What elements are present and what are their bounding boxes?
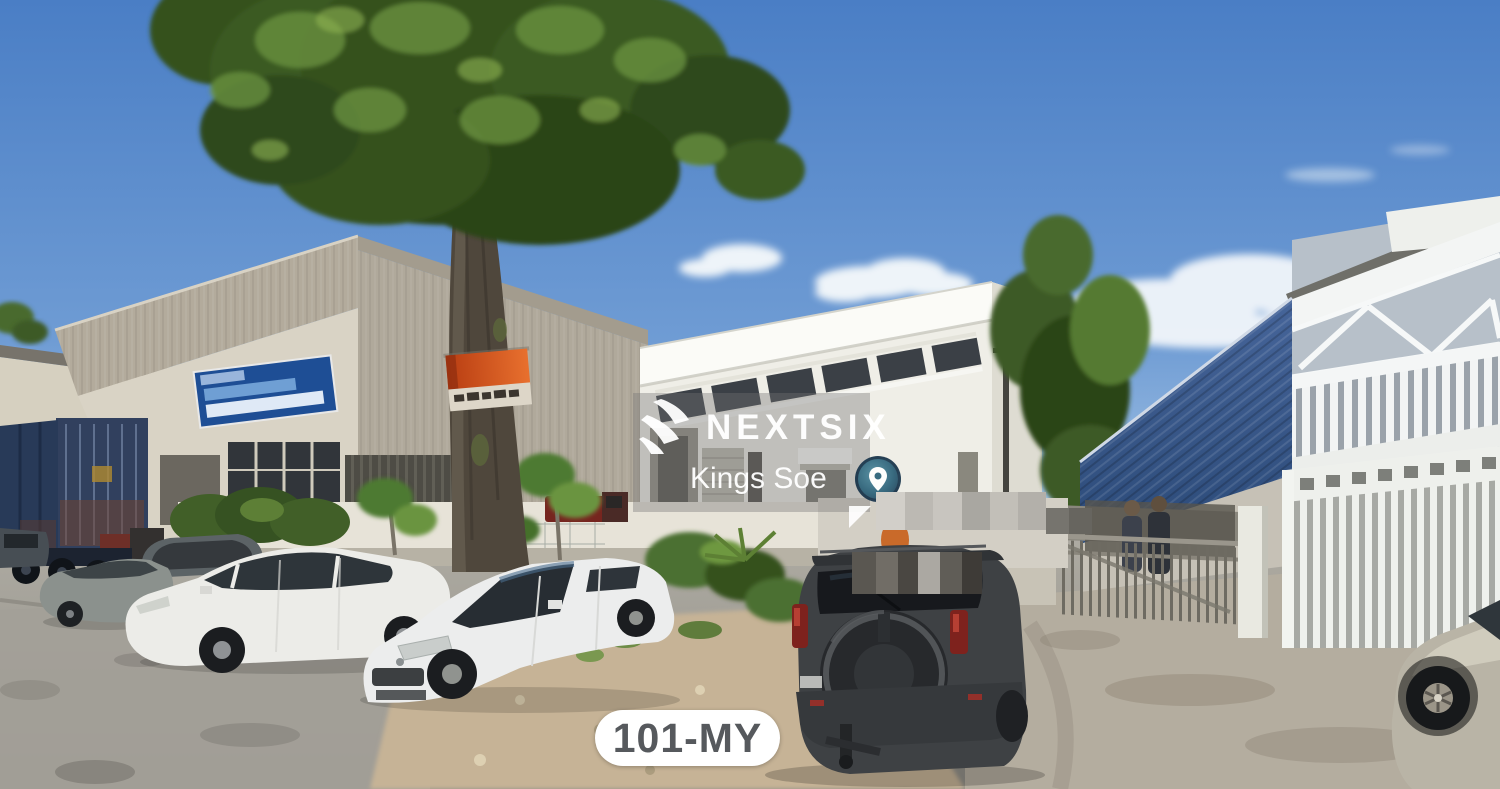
watermark-brand: NEXTSIX xyxy=(706,410,891,445)
privacy-mosaic-strip xyxy=(876,492,1046,530)
banner-sign xyxy=(443,346,534,411)
privacy-mosaic-strip-small xyxy=(1046,508,1092,534)
car-dark-fragment xyxy=(0,528,49,568)
watermark-agent-name: Kings Soe xyxy=(633,461,870,497)
location-badge-label: 101-MY xyxy=(613,715,763,762)
nextsix-logo-icon xyxy=(639,395,697,460)
location-badge: 101-MY xyxy=(595,710,780,766)
map-pin-tail xyxy=(849,506,871,528)
street-photo: NEXTSIX Kings Soe 101-MY xyxy=(0,0,1500,789)
watermark-box: NEXTSIX Kings Soe xyxy=(633,393,870,512)
privacy-mosaic-plate xyxy=(852,552,982,594)
